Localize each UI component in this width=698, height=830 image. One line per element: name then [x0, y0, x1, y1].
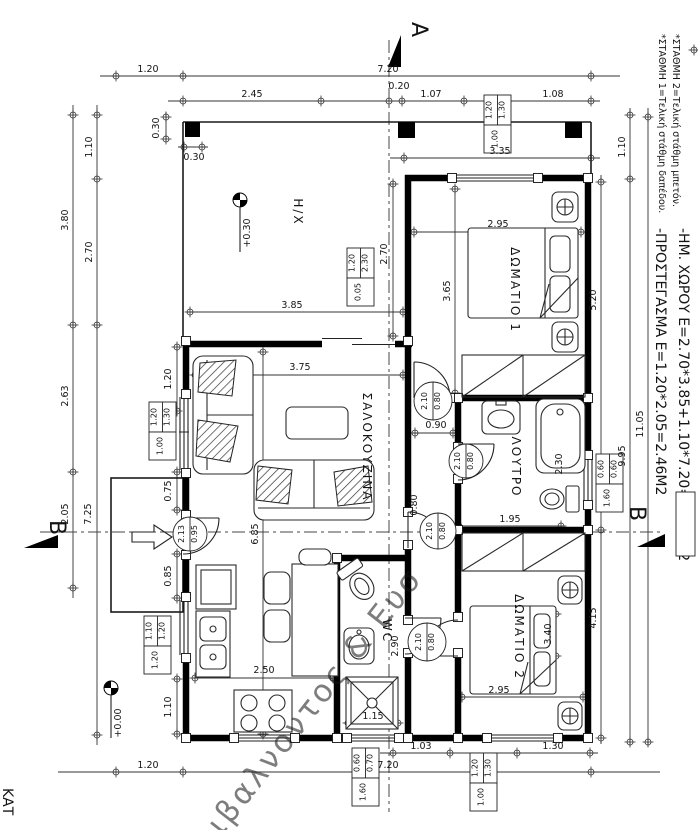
- room-label: ΔΩΜΑΤΙΟ 2: [512, 594, 526, 680]
- dim-tick-icon: [586, 71, 597, 82]
- dim-tick-icon: [643, 737, 654, 748]
- level-label: +0.30: [242, 218, 253, 247]
- window-sill: 1.00: [476, 788, 486, 806]
- dim-label: 2.95: [487, 219, 508, 230]
- wall-jamb: [182, 469, 191, 478]
- dim-label: 1.07: [420, 89, 441, 100]
- dim-tick-icon: [397, 96, 408, 107]
- dim-label: 1.03: [410, 741, 431, 752]
- dim-label: 0.75: [163, 480, 174, 501]
- window-width: 1.20: [347, 254, 357, 272]
- dim-tick-icon: [625, 174, 636, 185]
- column: [565, 122, 582, 138]
- note-text: ΚΑΤ: [0, 788, 15, 816]
- dim-tick-icon: [596, 177, 607, 188]
- room-label: Η/Χ: [291, 198, 305, 225]
- dim-label: 2.30: [554, 453, 565, 474]
- column: [398, 122, 415, 138]
- dim-tick-icon: [399, 153, 410, 164]
- dim-label: 7.25: [83, 503, 94, 524]
- dim-label: 3.85: [281, 300, 302, 311]
- dim-tick-icon: [625, 110, 636, 121]
- dim-tick-icon: [111, 767, 122, 778]
- wall-jamb: [182, 734, 191, 743]
- door-height: 2.10: [453, 452, 462, 470]
- dim-label: 0.30: [183, 152, 204, 163]
- dim-tick-icon: [178, 767, 189, 778]
- dim-label: 2.70: [379, 243, 390, 264]
- door-width: 0.80: [433, 392, 442, 410]
- door-height: 2.10: [414, 633, 423, 651]
- chair: [264, 572, 290, 604]
- dim-tick-icon: [512, 748, 523, 759]
- window-width: 1.20: [149, 408, 159, 426]
- dim-tick-icon: [172, 729, 183, 740]
- dim-tick-icon: [445, 748, 456, 759]
- dim-tick-icon: [92, 730, 103, 741]
- dim-label: 1.10: [617, 136, 628, 157]
- wall-jamb: [182, 551, 191, 560]
- window-height: 1.30: [483, 759, 493, 777]
- dim-tick-icon: [643, 112, 654, 123]
- dim-label: 2.50: [253, 665, 274, 676]
- dim-tick-icon: [111, 71, 122, 82]
- dim-label: 2.45: [241, 89, 262, 100]
- dim-label: 6.85: [250, 523, 261, 544]
- section-letter: B: [624, 506, 649, 521]
- wall-jamb: [395, 734, 404, 743]
- dim-tick-icon: [172, 467, 183, 478]
- wall-jamb: [404, 616, 413, 625]
- wall-jamb: [448, 174, 457, 183]
- dim-tick-icon: [689, 45, 698, 56]
- window-height: 1.20: [157, 622, 167, 640]
- chair: [264, 610, 290, 642]
- dim-label: 2.70: [84, 241, 95, 262]
- fridge: [196, 565, 236, 609]
- dim-tick-icon: [586, 767, 597, 778]
- wall-jamb: [230, 734, 239, 743]
- dim-label: 1.20: [137, 760, 158, 771]
- note-text: *ΣΤΑΘΜΗ 1=Τελική στάθμη δαπέδου.: [656, 34, 667, 213]
- dim-tick-icon: [585, 748, 596, 759]
- floor-plan-sheet: 1.201.301.001.202.300.051.201.301.001.10…: [0, 0, 698, 830]
- window-sill: 1.20: [150, 651, 160, 669]
- dim-tick-icon: [172, 342, 183, 353]
- wall-jamb: [182, 337, 191, 346]
- dim-tick-icon: [596, 525, 607, 536]
- dim-tick-icon: [172, 549, 183, 560]
- dim-tick-icon: [161, 134, 172, 145]
- window-width: 0.60: [596, 460, 606, 478]
- dim-label: 3.35: [489, 146, 510, 157]
- note-text: *ΣΤΑΘΜΗ 2=Τελική στάθμη μπετόν.: [670, 34, 681, 207]
- window-width: 1.10: [144, 622, 154, 640]
- entrance-arrow-icon: [132, 525, 172, 549]
- dim-label: 0.85: [163, 565, 174, 586]
- dim-label: 5.20: [588, 289, 599, 310]
- coffee-table: [286, 407, 348, 439]
- window-sill: 1.00: [155, 437, 165, 455]
- window-height: 1.30: [497, 101, 507, 119]
- nightstand-lamp: [558, 576, 582, 730]
- dim-tick-icon: [161, 112, 172, 123]
- toilet: [566, 486, 579, 512]
- wall-jamb: [333, 554, 342, 563]
- dim-label: 11.05: [635, 410, 646, 437]
- wall-jamb: [182, 654, 191, 663]
- dim-tick-icon: [172, 505, 183, 516]
- window-width: 1.20: [470, 759, 480, 777]
- door-height: 2.10: [425, 522, 434, 540]
- dim-label: 1.08: [542, 89, 563, 100]
- section-b-right-arrow: [637, 534, 665, 547]
- dim-label: 0.20: [388, 81, 409, 92]
- living-room-furniture: [193, 356, 374, 520]
- dim-label: 7.20: [377, 64, 398, 75]
- dim-tick-icon: [596, 733, 607, 744]
- dim-label: 0.80: [409, 494, 420, 515]
- dim-tick-icon: [68, 110, 79, 121]
- dim-tick-icon: [92, 110, 103, 121]
- door-width: 0.80: [427, 633, 436, 651]
- note-text: -ΠΡΟΣΤΕΓΑΣΜΑ Ε=1.20*2.05=2.46Μ2: [652, 228, 668, 495]
- dim-tick-icon: [185, 307, 196, 318]
- dim-label: 1.30: [542, 741, 563, 752]
- pillow: [198, 360, 236, 396]
- wall-jamb: [333, 734, 342, 743]
- dim-label: 1.95: [499, 514, 520, 525]
- dim-tick-icon: [586, 96, 597, 107]
- wall-jamb: [584, 501, 593, 510]
- dim-tick-icon: [459, 96, 470, 107]
- dim-tick-icon: [258, 347, 269, 358]
- dim-label: 7.20: [377, 760, 398, 771]
- dim-label: 0.90: [425, 420, 446, 431]
- window-height: 2.30: [360, 254, 370, 272]
- dim-tick-icon: [178, 96, 189, 107]
- dim-tick-icon: [68, 467, 79, 478]
- dim-label: 3.75: [289, 362, 310, 373]
- sliding-door: [322, 339, 395, 345]
- wall-jamb: [182, 390, 191, 399]
- pillow: [196, 420, 238, 462]
- bathroom-fixtures: [482, 399, 585, 512]
- window-sill: 0.05: [353, 283, 363, 301]
- dim-label: 1.15: [362, 711, 383, 722]
- window-width: 1.20: [484, 101, 494, 119]
- dim-tick-icon: [450, 184, 461, 195]
- dim-tick-icon: [197, 142, 208, 153]
- dim-tick-icon: [92, 320, 103, 331]
- room-label: ΣΑΛΟΚΟΥΖΙΝΑ: [360, 392, 374, 501]
- floor-plan-drawing: 1.201.301.001.202.300.051.201.301.001.10…: [0, 0, 698, 830]
- dim-tick-icon: [172, 674, 183, 685]
- dim-tick-icon: [316, 96, 327, 107]
- wall-jamb: [182, 593, 191, 602]
- dim-label: 2.63: [60, 385, 71, 406]
- dim-label: 1.20: [137, 64, 158, 75]
- dim-label: 1.20: [163, 368, 174, 389]
- door-width: 0.80: [438, 522, 447, 540]
- pillow: [256, 466, 292, 504]
- dim-label: 3.65: [442, 280, 453, 301]
- section-a-arrow: [388, 35, 401, 67]
- wall-jamb: [584, 174, 593, 183]
- window-sill: 1.60: [602, 489, 612, 507]
- wall-jamb: [454, 734, 463, 743]
- dim-tick-icon: [178, 71, 189, 82]
- dim-tick-icon: [68, 320, 79, 331]
- dim-label: 2.95: [488, 685, 509, 696]
- section-b-left-arrow: [24, 535, 58, 548]
- dim-label: 1.10: [163, 696, 174, 717]
- section-letter: B: [44, 520, 69, 535]
- bed-1: [468, 228, 578, 318]
- wall-jamb: [483, 734, 492, 743]
- dim-tick-icon: [179, 142, 190, 153]
- door-height: 2.13: [177, 525, 186, 543]
- wall-jamb: [343, 734, 352, 743]
- area-result-box: [676, 492, 695, 556]
- column: [185, 122, 200, 137]
- dim-label: 3.80: [60, 209, 71, 230]
- window-height: 1.30: [162, 408, 172, 426]
- wall-jamb: [584, 734, 593, 743]
- wall-jamb: [404, 337, 413, 346]
- dim-label: 1.10: [84, 136, 95, 157]
- dim-tick-icon: [625, 737, 636, 748]
- window-sill: 1.60: [358, 783, 368, 801]
- window-height: 0.70: [365, 754, 375, 772]
- room-label: ΛΟΥΤΡΟ: [509, 437, 523, 498]
- chair: [299, 549, 331, 565]
- door-width: 0.95: [190, 525, 199, 543]
- dim-label: 4.15: [588, 607, 599, 628]
- dim-label: 0.30: [151, 117, 162, 138]
- wall-jamb: [534, 174, 543, 183]
- level-label: +0.00: [113, 708, 124, 737]
- section-letter: A: [406, 22, 431, 37]
- dim-label: 9.95: [617, 445, 628, 466]
- door-height: 2.10: [420, 392, 429, 410]
- dim-tick-icon: [92, 174, 103, 185]
- dim-tick-icon: [172, 593, 183, 604]
- door-width: 0.80: [466, 452, 475, 470]
- dim-tick-icon: [68, 583, 79, 594]
- window-width: 0.60: [352, 754, 362, 772]
- room-label: ΔΩΜΑΤΙΟ 1: [508, 247, 522, 333]
- dim-label: 3.40: [543, 623, 554, 644]
